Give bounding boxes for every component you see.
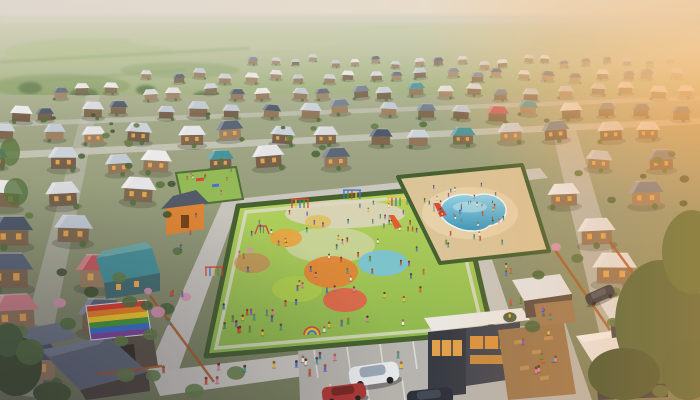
aerial-neighborhood-render: [0, 0, 700, 400]
aerial-neighborhood-photo: [0, 0, 700, 400]
light-grading: [0, 0, 700, 400]
